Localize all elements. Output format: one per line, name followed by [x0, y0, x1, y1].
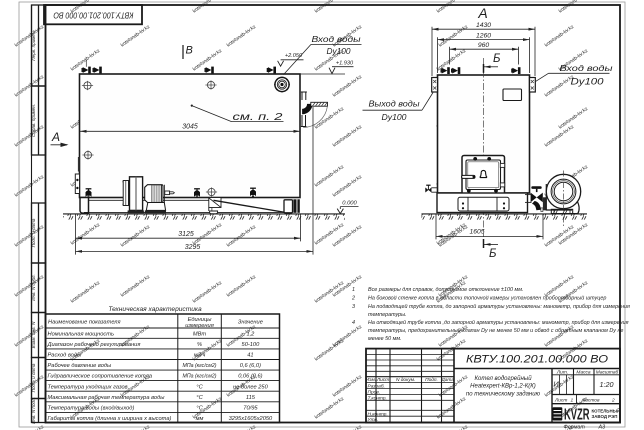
svg-text:На подводящей трубе котла, д: На подводящей трубе котла, до запорной а… — [368, 303, 630, 310]
svg-text:°С: °С — [196, 384, 203, 390]
svg-text:Dy100: Dy100 — [571, 77, 604, 87]
svg-text:Взам. инв. N: Взам. инв. N — [31, 321, 36, 348]
svg-text:КОТЕЛЬНЫЙ: КОТЕЛЬНЫЙ — [592, 409, 621, 414]
svg-text:Листов: Листов — [581, 397, 600, 403]
svg-text:Heatexpert-КВр-1,2-К(К): Heatexpert-КВр-1,2-К(К) — [470, 384, 536, 390]
svg-text:Масштаб: Масштаб — [596, 369, 619, 375]
svg-text:2: 2 — [351, 296, 355, 302]
svg-text:КВТУ.100.201.00.000 ВО: КВТУ.100.201.00.000 ВО — [466, 354, 608, 366]
svg-text:3295: 3295 — [185, 244, 201, 251]
svg-text:Вход воды: Вход воды — [312, 34, 362, 44]
svg-text:1: 1 — [571, 397, 574, 403]
svg-text:В: В — [186, 45, 193, 57]
svg-text:А: А — [51, 130, 60, 144]
svg-text:1,2: 1,2 — [246, 332, 255, 338]
svg-text:Масса: Масса — [576, 369, 591, 375]
svg-text:1: 1 — [352, 287, 355, 293]
svg-text:Лит.: Лит. — [556, 369, 568, 375]
svg-text:Н.контр.: Н.контр. — [368, 411, 388, 417]
svg-text:см. п. 2: см. п. 2 — [233, 111, 283, 123]
svg-text:3: 3 — [352, 304, 355, 310]
svg-text:1:20: 1:20 — [600, 380, 614, 389]
svg-text:0,06 (0,6): 0,06 (0,6) — [238, 374, 262, 380]
svg-text:1260: 1260 — [476, 32, 491, 39]
svg-text:Выход воды: Выход воды — [369, 99, 421, 109]
svg-text:Б: Б — [493, 53, 501, 65]
svg-text:Диапазон рабочего регулировани: Диапазон рабочего регулирования — [47, 342, 141, 348]
svg-text:Подп.: Подп. — [425, 377, 438, 383]
svg-text:МПа (кгс/см2): МПа (кгс/см2) — [183, 363, 217, 369]
svg-text:Единицы: Единицы — [188, 317, 213, 323]
svg-text:Лист: Лист — [554, 397, 567, 403]
svg-text:Формат: Формат — [564, 424, 586, 430]
svg-text:МПа (кгс/см2): МПа (кгс/см2) — [183, 374, 217, 380]
svg-text:Значение: Значение — [238, 320, 263, 326]
svg-text:Техническая характеристика: Техническая характеристика — [108, 306, 202, 313]
svg-text:измерения: измерения — [185, 323, 213, 329]
svg-text:Расход воды: Расход воды — [48, 353, 82, 359]
svg-text:Утв.: Утв. — [368, 417, 379, 423]
svg-text:Пров.: Пров. — [368, 390, 381, 396]
svg-text:И: И — [553, 380, 559, 389]
svg-text:Инв. N дубл.: Инв. N дубл. — [31, 274, 36, 301]
svg-text:Т.контр.: Т.контр. — [368, 395, 387, 401]
svg-text:0.000: 0.000 — [342, 201, 357, 207]
svg-text:4: 4 — [352, 320, 355, 326]
svg-text:1605: 1605 — [469, 229, 484, 236]
svg-text:Б: Б — [489, 248, 497, 260]
svg-text:Максимальная рабочая температу: Максимальная рабочая температура воды — [48, 395, 166, 401]
svg-text:960: 960 — [478, 42, 490, 49]
svg-text:41: 41 — [247, 353, 253, 359]
svg-text:Перв. примен.: Перв. примен. — [31, 30, 36, 61]
svg-text:Вход воды: Вход воды — [560, 63, 614, 73]
svg-text:1430: 1430 — [476, 22, 491, 29]
svg-text:Dy100: Dy100 — [327, 46, 351, 56]
svg-text:температуры.: температуры. — [368, 312, 407, 318]
svg-text:Подп. и дата: Подп. и дата — [31, 363, 36, 392]
svg-text:2: 2 — [611, 397, 615, 403]
svg-text:МВт: МВт — [193, 332, 207, 338]
svg-text:КВТУ.100.201.00.000 ВО: КВТУ.100.201.00.000 ВО — [53, 11, 134, 20]
svg-text:Наименование показателя: Наименование показателя — [48, 320, 121, 326]
svg-text:N докум.: N докум. — [396, 377, 415, 383]
svg-text:Котел водогрейный: Котел водогрейный — [474, 375, 532, 382]
svg-text:температуры, предохранительный: температуры, предохранительный клапан Dy… — [368, 327, 623, 334]
svg-text:0,6 (6,0): 0,6 (6,0) — [240, 363, 261, 369]
svg-text:KVZR: KVZR — [564, 407, 590, 424]
svg-text:Гидравлическое сопротивление к: Гидравлическое сопротивление котла — [48, 374, 153, 380]
svg-text:ЗАВОД РЭП: ЗАВОД РЭП — [592, 414, 618, 419]
svg-text:по техническому заданию: по техническому заданию — [466, 391, 541, 397]
svg-text:%: % — [197, 342, 202, 348]
svg-text:50-100: 50-100 — [242, 342, 261, 348]
svg-text:Габариты котла (длинна х ширин: Габариты котла (длинна х ширина х высота… — [48, 416, 172, 422]
svg-text:70/95: 70/95 — [243, 406, 258, 412]
svg-text:На отводящей трубе котла ,до з: На отводящей трубе котла ,до запорной ар… — [368, 319, 629, 326]
svg-text:+1.930: +1.930 — [336, 61, 354, 67]
svg-text:3295х1605х2050: 3295х1605х2050 — [229, 416, 273, 422]
svg-text:Подп. и дата: Подп. и дата — [31, 218, 36, 247]
svg-text:Справ. примен.: Справ. примен. — [31, 104, 36, 137]
svg-text:Температура воды (вход/выход): Температура воды (вход/выход) — [48, 406, 135, 412]
svg-text:м3/ч: м3/ч — [194, 353, 206, 359]
svg-text:°С: °С — [196, 395, 203, 401]
svg-text:115: 115 — [246, 395, 256, 401]
svg-text:не более 250: не более 250 — [233, 384, 269, 390]
svg-text:Разраб.: Разраб. — [368, 384, 385, 390]
svg-text:А3: А3 — [598, 424, 606, 430]
svg-text:°С: °С — [196, 406, 203, 412]
svg-text:Рабочее давление воды: Рабочее давление воды — [48, 363, 113, 369]
svg-text:мм: мм — [196, 416, 204, 422]
svg-text:Изм.: Изм. — [366, 377, 376, 383]
svg-text:Температура уходящих газов: Температура уходящих газов — [48, 384, 128, 390]
svg-text:Инв. N подл.: Инв. N подл. — [31, 397, 36, 424]
svg-text:А: А — [477, 5, 487, 21]
svg-text:Все размеры для справок, допус: Все размеры для справок, допустимое откл… — [368, 287, 523, 293]
svg-text:Номинальная мощность: Номинальная мощность — [48, 332, 114, 338]
svg-text:На боковой стенке котла в обла: На боковой стенке котла в области топочн… — [368, 295, 606, 302]
svg-text:менее 50 мм.: менее 50 мм. — [368, 336, 402, 342]
svg-text:Лист: Лист — [376, 377, 389, 383]
svg-text:3125: 3125 — [178, 231, 194, 238]
svg-text:3045: 3045 — [182, 124, 198, 131]
svg-text:Дата: Дата — [440, 377, 454, 383]
svg-text:Dy100: Dy100 — [382, 112, 407, 122]
